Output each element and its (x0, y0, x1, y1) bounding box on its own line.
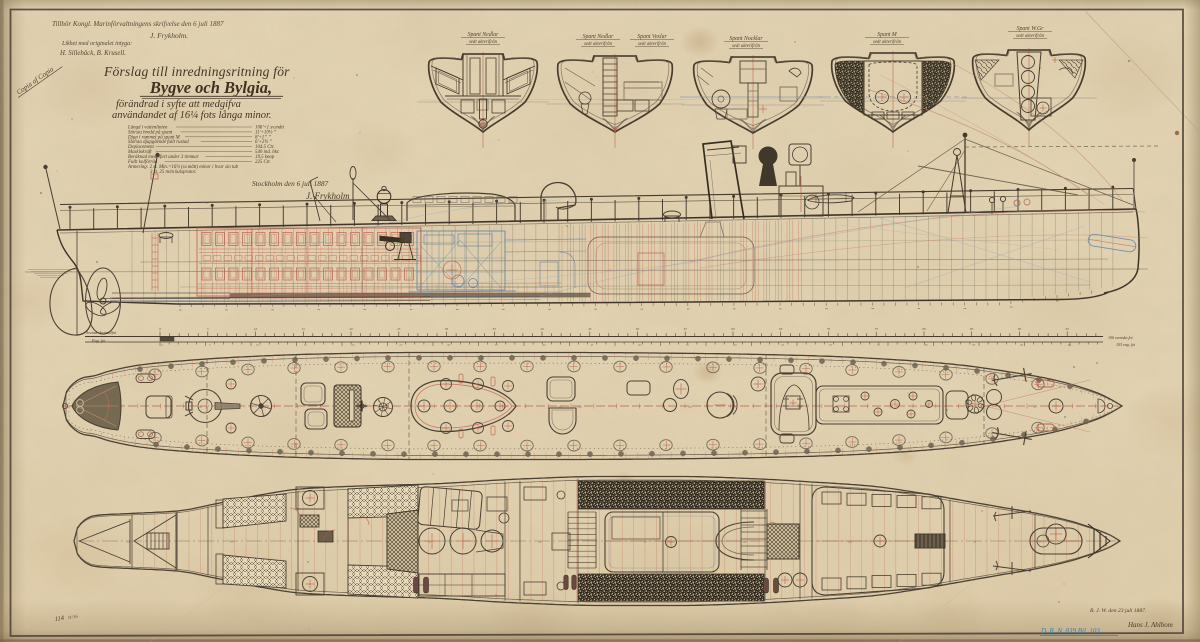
svg-text:95: 95 (1066, 327, 1070, 331)
svg-text:28: 28 (198, 405, 202, 409)
svg-text:Likhet med originalet intyga:: Likhet med originalet intyga: (61, 41, 132, 47)
svg-text:sedt akterifrån: sedt akterifrån (873, 39, 902, 45)
svg-text:60: 60 (734, 343, 738, 347)
svg-text:25: 25 (230, 540, 234, 544)
svg-text:Spant W.Gr: Spant W.Gr (1017, 26, 1045, 32)
svg-text:98: 98 (688, 405, 692, 409)
svg-text:Spant Nedlar: Spant Nedlar (583, 34, 615, 40)
svg-text:10: 10 (254, 327, 258, 331)
svg-text:Hans J. Ahlbom: Hans J. Ahlbom (1127, 621, 1173, 629)
svg-text:Stockholm den 6 juli 1887: Stockholm den 6 juli 1887 (252, 179, 329, 188)
svg-text:8: 8 (974, 540, 976, 544)
svg-text:15: 15 (302, 327, 306, 331)
svg-text:51: 51 (358, 405, 362, 409)
svg-text:94: 94 (848, 540, 852, 544)
svg-text:65: 65 (781, 343, 785, 347)
svg-text:Spant M: Spant M (877, 32, 898, 38)
svg-text:103 eng. fot: 103 eng. fot (1116, 342, 1136, 347)
svg-text:71: 71 (643, 540, 647, 544)
svg-text:förändrad i syfte att medgifva: förändrad i syfte att medgifva (116, 99, 241, 110)
svg-text:50: 50 (636, 327, 640, 331)
svg-text:sedt akterifrån: sedt akterifrån (732, 43, 761, 49)
svg-text:D. R. N. 839 Bil. 103.: D. R. N. 839 Bil. 103. (1040, 627, 1102, 635)
svg-text:14: 14 (798, 405, 802, 409)
svg-text:5: 5 (734, 405, 736, 409)
svg-text:225 Ctr.: 225 Ctr. (255, 160, 271, 165)
svg-text:72: 72 (503, 405, 507, 409)
svg-text:82: 82 (578, 405, 582, 409)
svg-text:40: 40 (543, 343, 547, 347)
svg-text:90: 90 (1020, 343, 1024, 347)
svg-text:30: 30 (447, 343, 451, 347)
svg-text:sedt akterifrån: sedt akterifrån (638, 41, 667, 47)
svg-text:47: 47 (1033, 405, 1037, 409)
svg-text:sedt akterifrån: sedt akterifrån (469, 39, 498, 45)
svg-text:sedt akterifrån: sedt akterifrån (1016, 33, 1045, 39)
svg-text:80: 80 (922, 327, 926, 331)
svg-text:45: 45 (588, 327, 592, 331)
svg-text:85: 85 (970, 327, 974, 331)
svg-text:30: 30 (445, 327, 449, 331)
svg-text:Fullt kolförråd: Fullt kolförråd (127, 159, 158, 165)
svg-text:50: 50 (638, 343, 642, 347)
svg-text:70: 70 (829, 343, 833, 347)
svg-text:55: 55 (686, 343, 690, 347)
svg-text:Förslag till inredningsritning: Förslag till inredningsritning för (103, 64, 290, 79)
svg-text:20: 20 (352, 343, 356, 347)
svg-text:80: 80 (925, 343, 929, 347)
svg-text:Tillhör Kongl. Marinförvaltnin: Tillhör Kongl. Marinförvaltningens skrif… (52, 20, 224, 28)
svg-text:20: 20 (349, 327, 353, 331)
svg-text:75: 75 (875, 327, 879, 331)
svg-text:114: 114 (54, 615, 65, 623)
svg-text:H. Sillebäck, B. Krusell.: H. Sillebäck, B. Krusell. (59, 50, 126, 57)
svg-text:Spant Nocklar: Spant Nocklar (729, 36, 763, 42)
svg-text:47: 47 (428, 540, 432, 544)
svg-text:25: 25 (397, 327, 401, 331)
svg-text:60: 60 (538, 540, 542, 544)
svg-text:10: 10 (256, 343, 260, 347)
svg-text:40: 40 (540, 327, 544, 331)
svg-text:1: 1 (914, 540, 916, 544)
svg-text:65: 65 (779, 327, 783, 331)
svg-text:82: 82 (743, 540, 747, 544)
svg-text:Spant Nedlar: Spant Nedlar (468, 32, 500, 38)
svg-text:106 svenska fot: 106 svenska fot (1108, 335, 1134, 340)
svg-text:Bygve och Bylgia,: Bygve och Bylgia, (149, 78, 272, 97)
svg-text:55: 55 (684, 327, 688, 331)
svg-text:37: 37 (258, 405, 262, 409)
svg-text:R. J. W. den 23 juli 1887.: R. J. W. den 23 juli 1887. (1089, 608, 1146, 614)
svg-text:25: 25 (399, 343, 403, 347)
svg-text:60: 60 (731, 327, 735, 331)
svg-text:J. Frykholm.: J. Frykholm. (150, 31, 188, 40)
svg-text:14: 14 (126, 540, 130, 544)
svg-text:15: 15 (1038, 540, 1042, 544)
svg-text:75: 75 (877, 343, 881, 347)
svg-text:Spant Vexlar: Spant Vexlar (637, 34, 667, 40)
svg-text:sedt akterifrån: sedt akterifrån (584, 41, 613, 47)
svg-text:70: 70 (827, 327, 831, 331)
svg-text:95: 95 (1068, 343, 1072, 347)
svg-text:Svensk decimalfot: Svensk decimalfot (86, 330, 117, 335)
svg-text:85: 85 (972, 343, 976, 347)
svg-text:80: 80 (558, 405, 562, 409)
svg-text:45: 45 (590, 343, 594, 347)
svg-text:användandet af 16¼ fots långa: användandet af 16¼ fots långa minor. (112, 110, 272, 121)
svg-text:35: 35 (493, 327, 497, 331)
svg-text:90: 90 (1018, 327, 1022, 331)
